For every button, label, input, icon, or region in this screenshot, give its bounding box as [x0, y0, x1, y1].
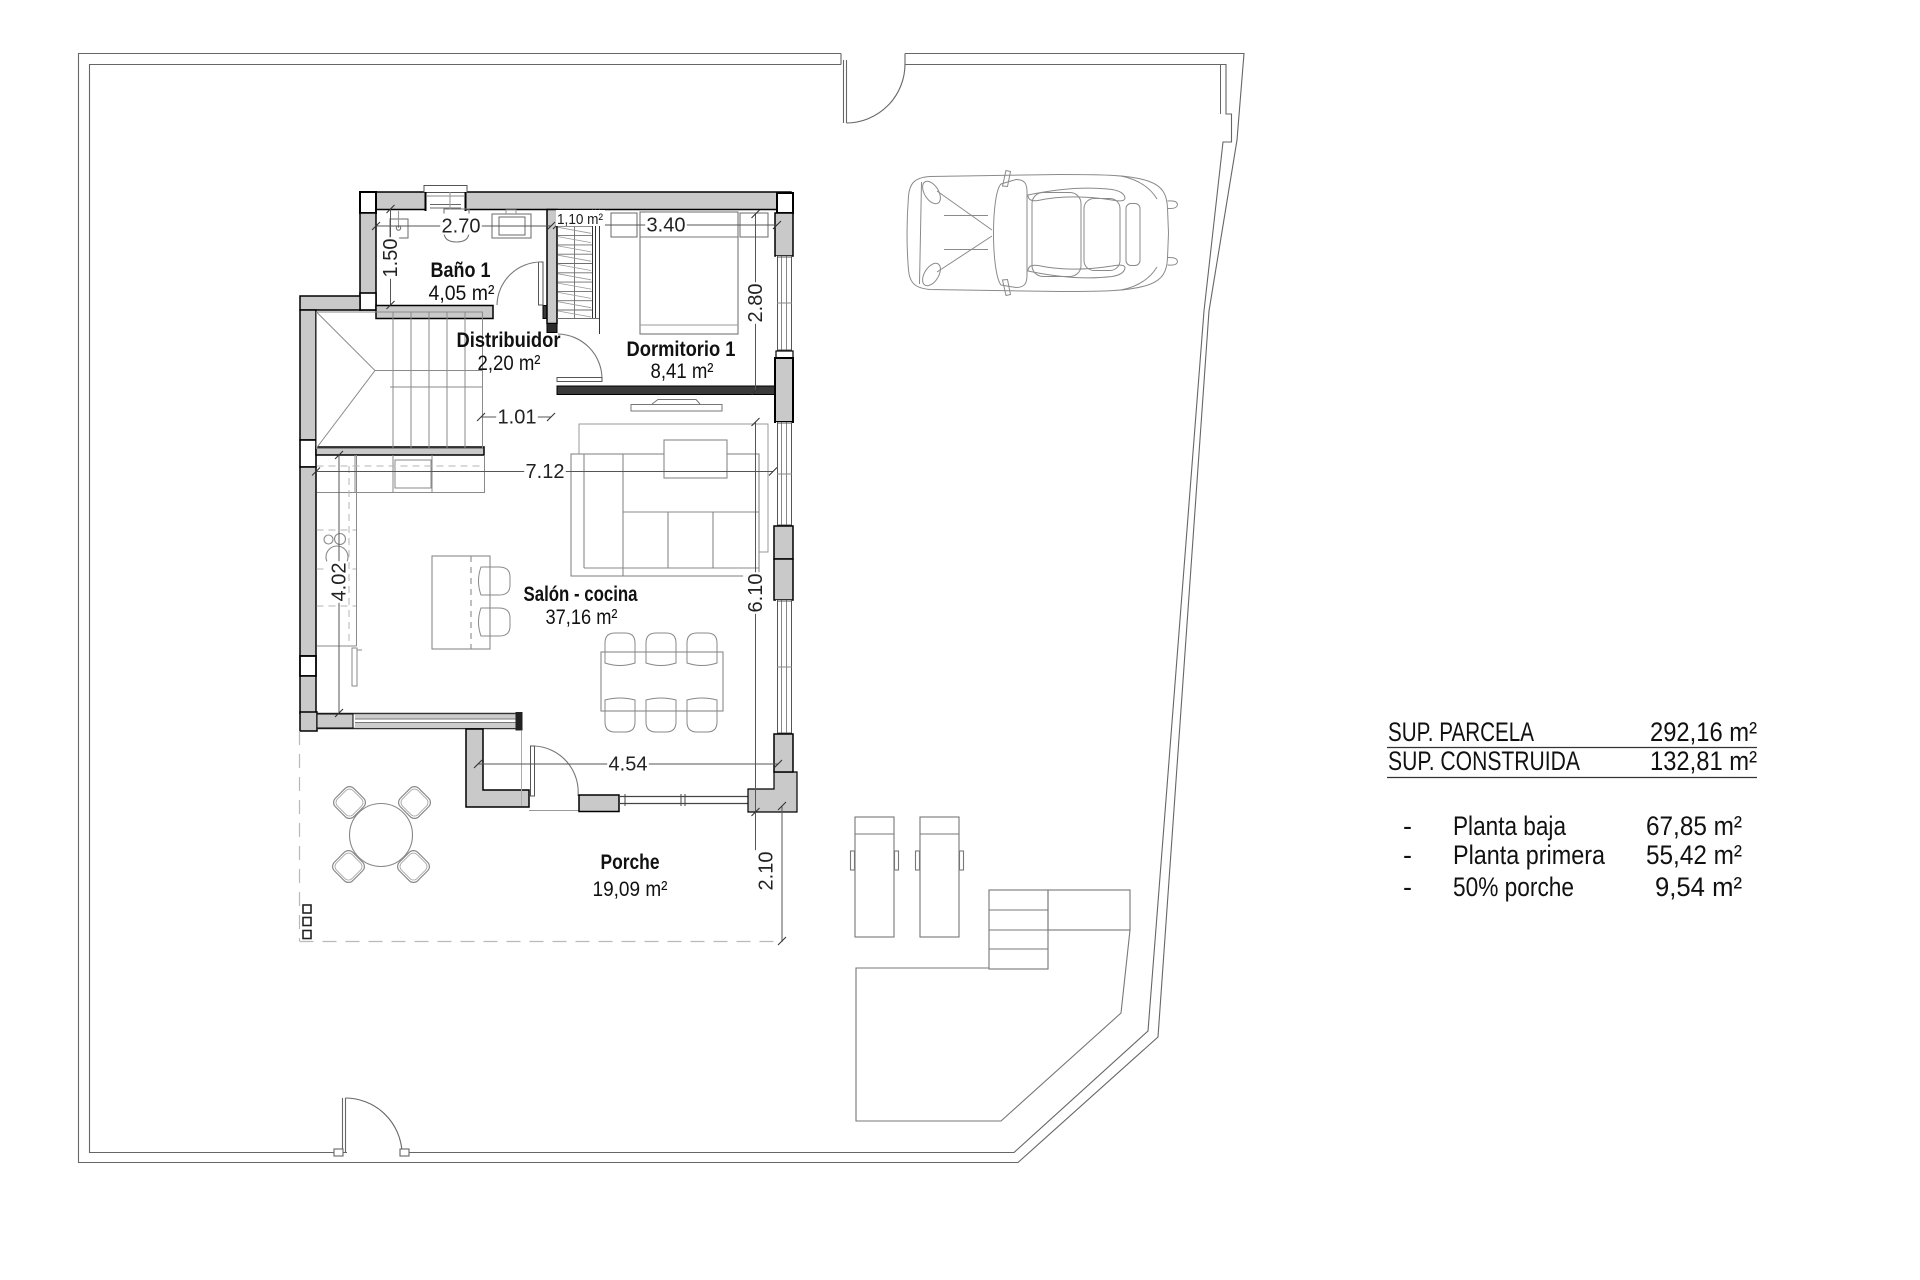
svg-text:2.70: 2.70 — [442, 215, 481, 237]
svg-text:Planta baja: Planta baja — [1453, 811, 1567, 841]
svg-text:19,09 m²: 19,09 m² — [593, 878, 668, 901]
svg-text:37,16 m²: 37,16 m² — [546, 606, 618, 629]
svg-text:SUP. CONSTRUIDA: SUP. CONSTRUIDA — [1388, 746, 1580, 776]
svg-text:Distribuidor: Distribuidor — [457, 329, 561, 352]
svg-text:Porche: Porche — [601, 851, 660, 874]
svg-text:9,54 m²: 9,54 m² — [1655, 872, 1742, 902]
svg-text:Planta primera: Planta primera — [1453, 840, 1606, 870]
svg-text:Dormitorio 1: Dormitorio 1 — [627, 338, 736, 361]
svg-text:4.54: 4.54 — [609, 753, 648, 775]
svg-text:SUP. PARCELA: SUP. PARCELA — [1388, 717, 1534, 747]
svg-text:2.80: 2.80 — [745, 284, 767, 323]
svg-text:4.02: 4.02 — [328, 563, 350, 602]
svg-text:-: - — [1403, 811, 1412, 841]
svg-text:8,41 m²: 8,41 m² — [651, 360, 714, 383]
svg-text:-: - — [1403, 840, 1412, 870]
svg-text:2.10: 2.10 — [755, 852, 777, 891]
svg-text:67,85 m²: 67,85 m² — [1646, 811, 1742, 841]
svg-text:2,20 m²: 2,20 m² — [478, 352, 541, 375]
svg-text:Baño 1: Baño 1 — [431, 259, 491, 282]
svg-text:1,10 m²: 1,10 m² — [557, 211, 603, 228]
svg-text:4,05 m²: 4,05 m² — [429, 282, 495, 305]
svg-text:55,42 m²: 55,42 m² — [1646, 840, 1742, 870]
svg-text:1.01: 1.01 — [498, 406, 537, 428]
svg-text:3.40: 3.40 — [647, 214, 686, 236]
svg-text:50% porche: 50% porche — [1453, 872, 1574, 902]
svg-text:-: - — [1403, 872, 1412, 902]
svg-text:292,16 m²: 292,16 m² — [1650, 717, 1757, 747]
svg-text:7.12: 7.12 — [526, 461, 565, 483]
svg-text:1.50: 1.50 — [380, 239, 402, 278]
svg-text:6.10: 6.10 — [745, 574, 767, 613]
svg-text:132,81 m²: 132,81 m² — [1650, 746, 1757, 776]
svg-text:Salón - cocina: Salón - cocina — [524, 583, 638, 606]
